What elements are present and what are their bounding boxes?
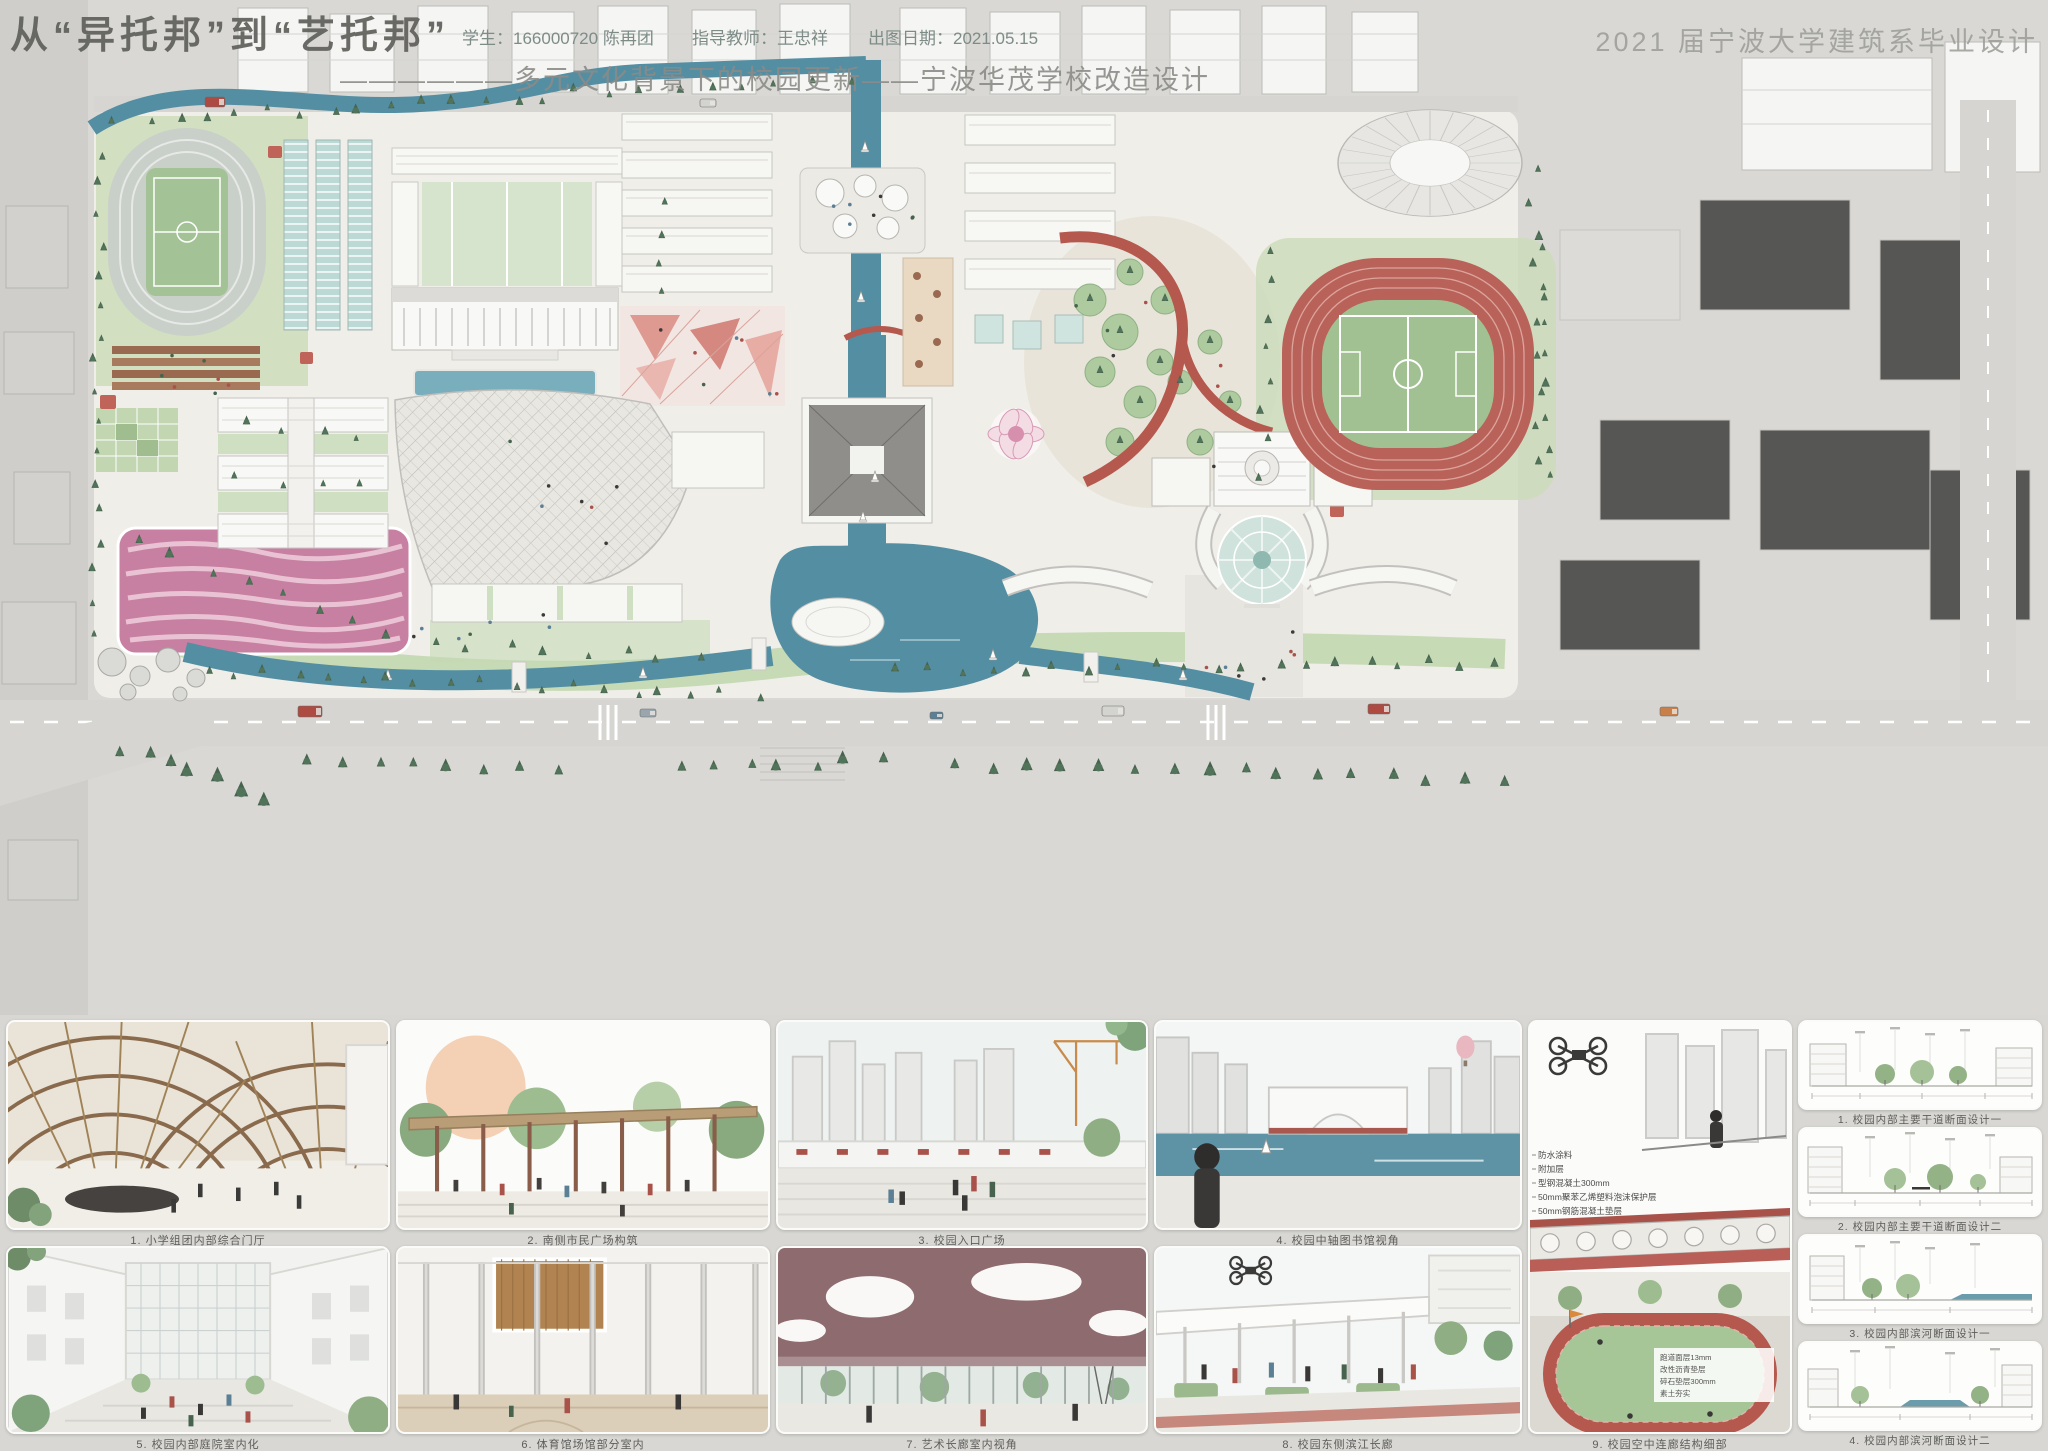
caption-rendering-8: 8. 校园东侧滨江长廊 bbox=[1154, 1436, 1522, 1451]
caption-section-4: 4. 校园内部滨河断面设计二 bbox=[1798, 1433, 2042, 1448]
main-classical-building bbox=[392, 288, 618, 396]
rendering-9: 防水涂料 附加层 型钢混凝土300mm 50mm聚苯乙烯塑料泡沫保护层 50mm… bbox=[1528, 1020, 1792, 1451]
svg-text:碎石垫层300mm: 碎石垫层300mm bbox=[1660, 1376, 1716, 1386]
svg-text:改性沥青垫层: 改性沥青垫层 bbox=[1660, 1364, 1706, 1374]
canal-terrace-pavilion bbox=[800, 168, 925, 253]
caption-rendering-7: 7. 艺术长廊室内视角 bbox=[776, 1436, 1148, 1451]
section-diagram-4: 4. 校园内部滨河断面设计二 bbox=[1798, 1341, 2042, 1448]
checker-plaza bbox=[96, 408, 178, 472]
caption-rendering-6: 6. 体育馆场馆部分室内 bbox=[396, 1436, 770, 1451]
pond-hall bbox=[802, 398, 932, 523]
svg-text:素土夯实: 素土夯实 bbox=[1660, 1388, 1691, 1398]
rendering-4: 4. 校园中轴图书馆视角 bbox=[1154, 1020, 1522, 1248]
program-title: 2021 届宁波大学建筑系毕业设计 bbox=[1595, 20, 2038, 59]
caption-rendering-5: 5. 校园内部庭院室内化 bbox=[6, 1436, 390, 1451]
rendering-8: 8. 校园东侧滨江长廊 bbox=[1154, 1246, 1522, 1451]
caption-section-3: 3. 校园内部滨河断面设计一 bbox=[1798, 1326, 2042, 1341]
circular-stadium bbox=[1338, 110, 1522, 217]
rendering-5: 5. 校园内部庭院室内化 bbox=[6, 1246, 390, 1451]
rendering-gallery: 1. 小学组团内部综合门厅 2. 南侧市民广场构筑 bbox=[0, 1015, 2048, 1451]
site-plan-illustration bbox=[0, 0, 2048, 1015]
main-running-track bbox=[1282, 258, 1534, 490]
svg-text:50mm钢筋混凝土垫层: 50mm钢筋混凝土垫层 bbox=[1538, 1205, 1622, 1216]
svg-text:跑道面层13mm: 跑道面层13mm bbox=[1660, 1352, 1711, 1362]
presentation-board: 从“异托邦”到“艺托邦” 学生：166000720 陈再团 指导教师：王忠祥 出… bbox=[0, 0, 2048, 1451]
rendering-1: 1. 小学组团内部综合门厅 bbox=[6, 1020, 390, 1248]
pink-plaza bbox=[620, 306, 785, 406]
classroom-bars bbox=[218, 398, 388, 548]
section-diagram-2: 2. 校园内部主要干道断面设计二 bbox=[1798, 1127, 2042, 1234]
svg-text:防水涂料: 防水涂料 bbox=[1538, 1149, 1573, 1160]
rendering-6: 6. 体育馆场馆部分室内 bbox=[396, 1246, 770, 1451]
section-diagram-1: 1. 校园内部主要干道断面设计一 bbox=[1798, 1020, 2042, 1127]
small-running-track bbox=[108, 128, 266, 336]
rendering-2: 2. 南侧市民广场构筑 bbox=[396, 1020, 770, 1248]
svg-text:型钢混凝土300mm: 型钢混凝土300mm bbox=[1538, 1177, 1610, 1188]
student-label: 学生：166000720 陈再团 bbox=[462, 24, 654, 49]
page-title: 从“异托邦”到“艺托邦” bbox=[10, 4, 450, 59]
pool-building bbox=[284, 140, 372, 330]
north-building bbox=[392, 148, 622, 286]
caption-rendering-9: 9. 校园空中连廊结构细部 bbox=[1528, 1436, 1792, 1451]
date-label: 出图日期：2021.05.15 bbox=[868, 24, 1038, 49]
rendering-7: 7. 艺术长廊室内视角 bbox=[776, 1246, 1148, 1451]
rendering-3: 3. 校园入口广场 bbox=[776, 1020, 1148, 1248]
section-diagram-3: 3. 校园内部滨河断面设计一 bbox=[1798, 1234, 2042, 1341]
caption-section-1: 1. 校园内部主要干道断面设计一 bbox=[1798, 1112, 2042, 1127]
svg-text:50mm聚苯乙烯塑料泡沫保护层: 50mm聚苯乙烯塑料泡沫保护层 bbox=[1538, 1191, 1657, 1202]
cafe-courtyard bbox=[903, 258, 953, 386]
caption-section-2: 2. 校园内部主要干道断面设计二 bbox=[1798, 1219, 2042, 1234]
subtitle: ——————多元文化背景下的校园更新——宁波华茂学校改造设计 bbox=[340, 58, 1210, 97]
advisor-label: 指导教师：王忠祥 bbox=[692, 24, 828, 49]
svg-text:附加层: 附加层 bbox=[1538, 1163, 1564, 1174]
